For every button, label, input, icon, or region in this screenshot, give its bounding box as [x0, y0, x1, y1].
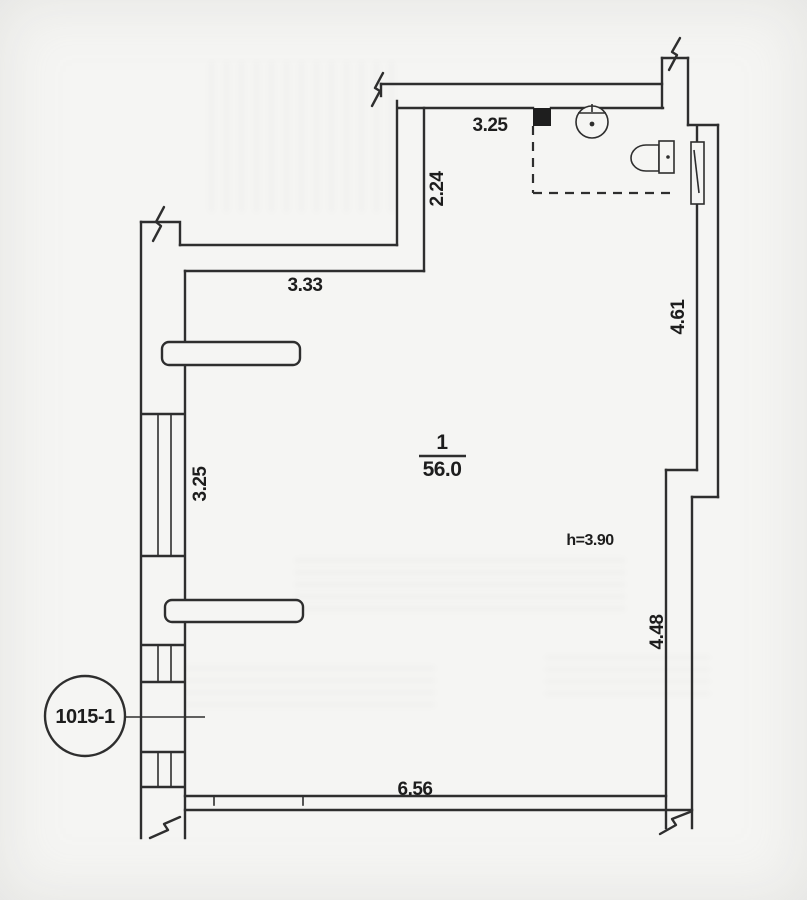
dim-right-upper-label: 4.61 — [668, 299, 689, 335]
dim-bath-width-label: 3.25 — [473, 115, 509, 136]
scanned-floor-plan-sheet: 3.25 2.24 3.33 4.61 3.25 4.48 6.56 1 56.… — [0, 0, 807, 900]
wall-break-icon — [153, 207, 164, 241]
room-number-label: 1 — [436, 431, 448, 454]
wall-break-icon — [669, 38, 680, 70]
beam-lower — [165, 600, 303, 622]
door-leaf — [691, 142, 704, 204]
ceiling-height-label: h=3.90 — [566, 532, 614, 549]
toilet-icon — [631, 141, 674, 173]
dim-right-lower-label: 4.48 — [647, 615, 668, 650]
dim-left-wall-label: 3.25 — [190, 466, 211, 502]
unit-number-label: 1015-1 — [55, 706, 115, 728]
beam-upper — [162, 342, 300, 365]
wall-break-icon — [150, 817, 180, 838]
window-left-3 — [141, 752, 185, 787]
dim-upper-width-label: 3.33 — [288, 275, 323, 296]
room-area-label: 56.0 — [423, 458, 462, 481]
dim-entry-depth-label: 2.24 — [427, 171, 448, 207]
vent-shaft — [533, 108, 551, 126]
window-left-1 — [141, 414, 185, 556]
wall-break-icon — [660, 812, 690, 834]
window-left-2 — [141, 645, 185, 682]
room-area-fraction: 1 56.0 — [419, 431, 466, 481]
floor-plan-canvas: 3.25 2.24 3.33 4.61 3.25 4.48 6.56 1 56.… — [0, 0, 807, 900]
dim-bottom-width-label: 6.56 — [398, 779, 433, 800]
unit-number-bubble: 1015-1 — [45, 676, 205, 756]
